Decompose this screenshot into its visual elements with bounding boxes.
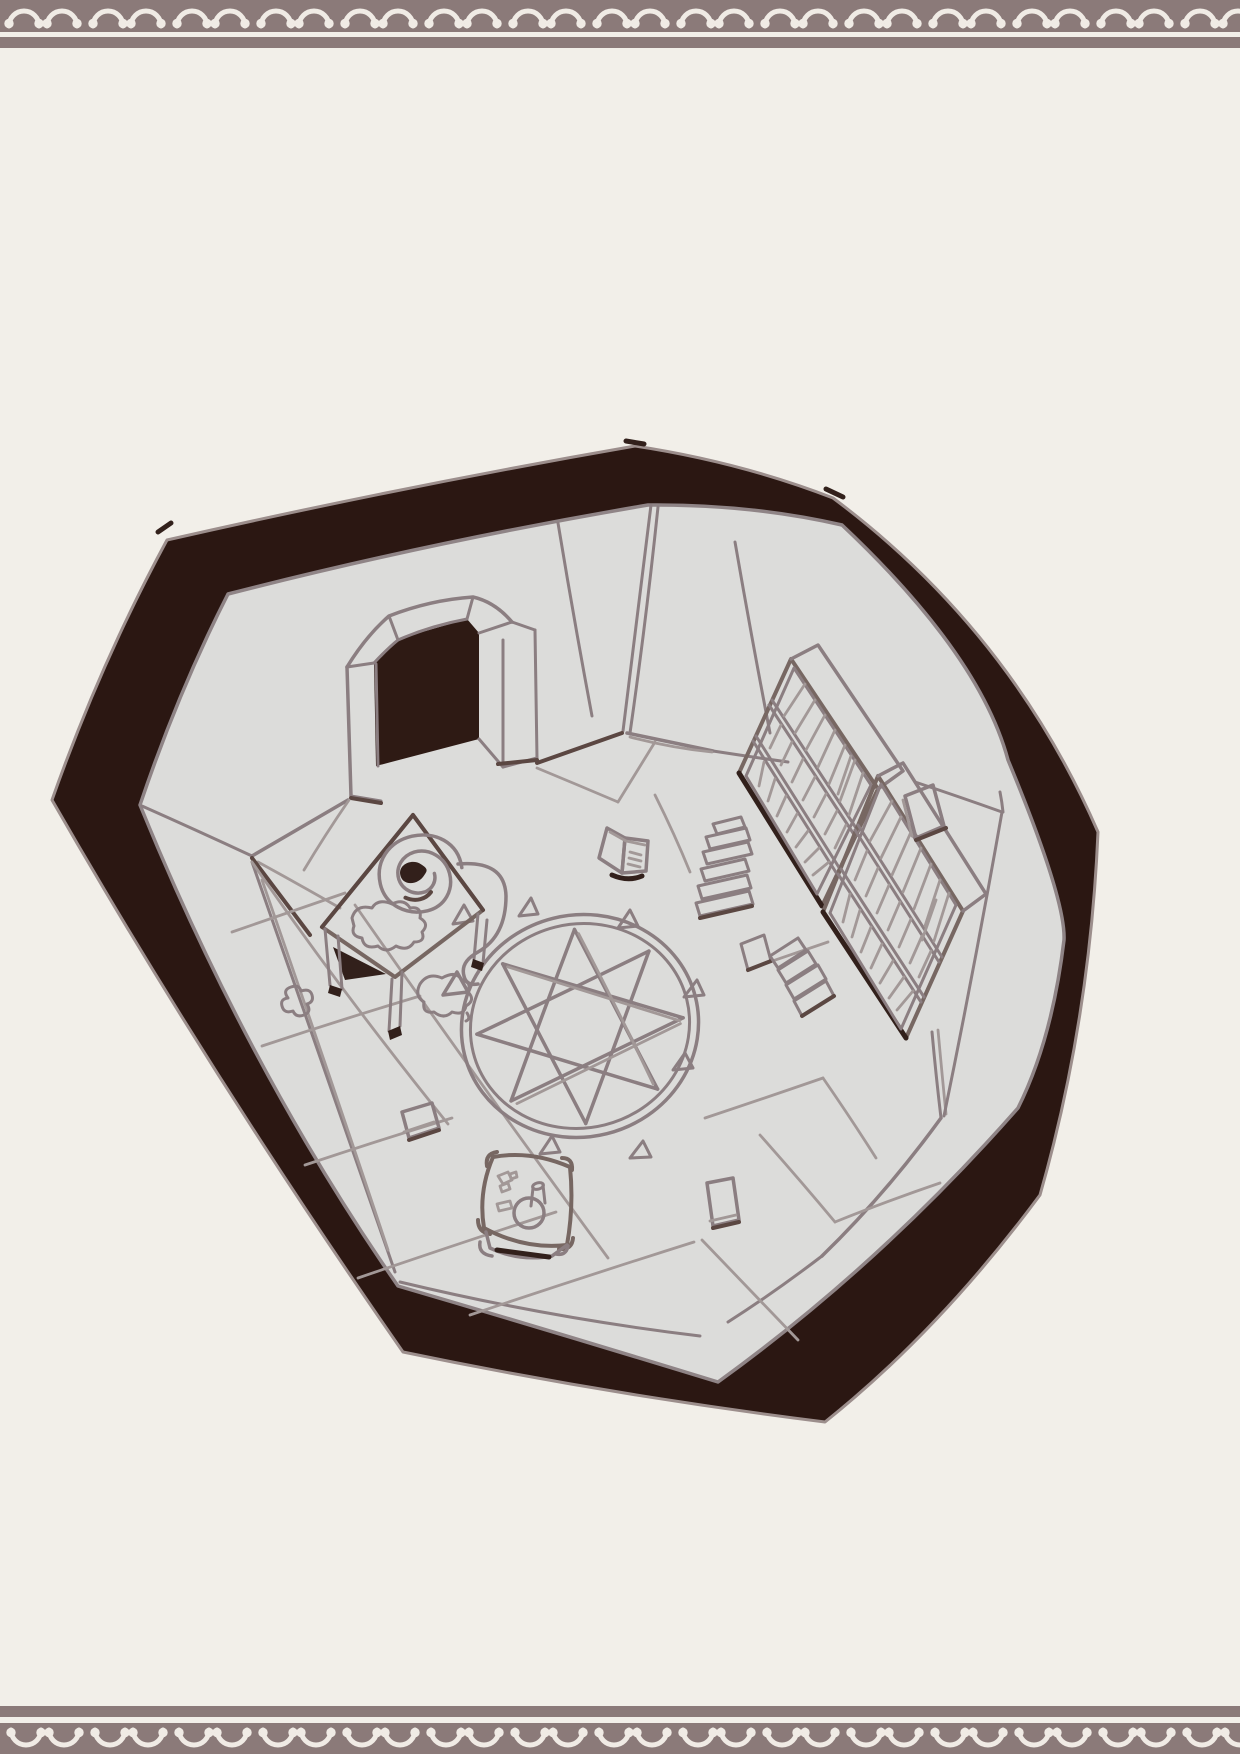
top-border bbox=[0, 0, 1240, 48]
top-border-lace-pattern bbox=[0, 0, 1240, 32]
bottom-border-strip bbox=[0, 1706, 1240, 1717]
page bbox=[0, 0, 1240, 1754]
room-illustration bbox=[0, 0, 1240, 1754]
top-border-strip bbox=[0, 37, 1240, 48]
bottom-border-lace-pattern bbox=[0, 1723, 1240, 1754]
bottom-border bbox=[0, 1706, 1240, 1754]
